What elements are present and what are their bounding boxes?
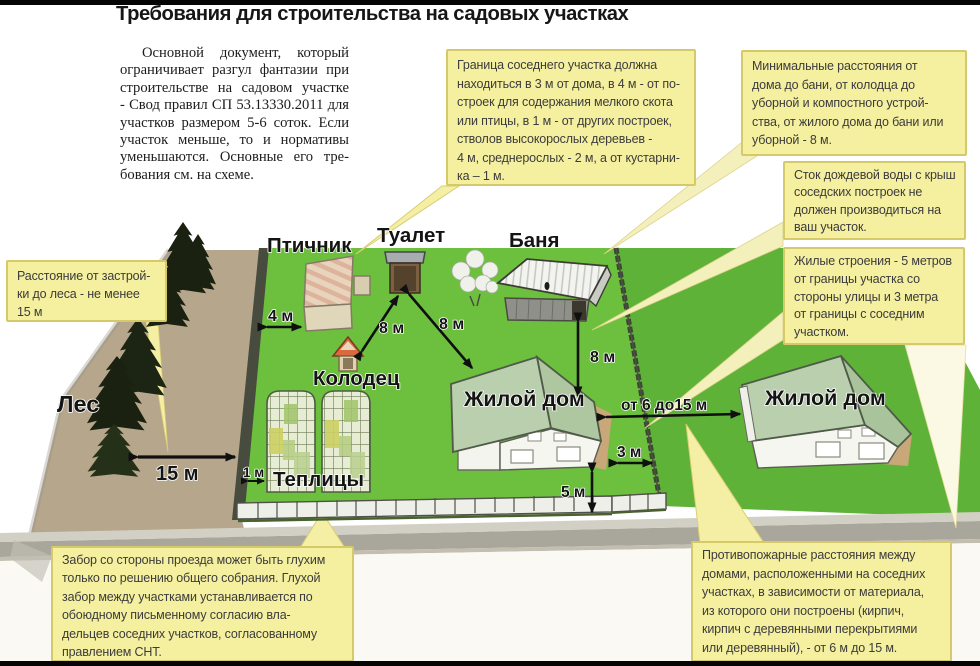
svg-text:1 м: 1 м xyxy=(243,465,264,480)
svg-text:8 м: 8 м xyxy=(590,349,615,366)
svg-text:8 м: 8 м xyxy=(379,320,404,337)
svg-text:8 м: 8 м xyxy=(439,316,464,333)
svg-text:5 м: 5 м xyxy=(561,484,585,501)
svg-text:Колодец: Колодец xyxy=(313,367,400,390)
svg-text:4 м: 4 м xyxy=(268,308,293,325)
svg-text:Лес: Лес xyxy=(57,391,99,417)
svg-text:от 6 до15 м: от 6 до15 м xyxy=(621,397,707,414)
svg-text:3 м: 3 м xyxy=(617,444,641,461)
svg-text:15 м: 15 м xyxy=(156,463,199,485)
svg-text:Птичник: Птичник xyxy=(267,234,352,257)
svg-text:Жилой дом: Жилой дом xyxy=(463,387,585,411)
svg-text:Баня: Баня xyxy=(509,229,559,252)
svg-text:Теплицы: Теплицы xyxy=(273,468,364,491)
svg-text:Жилой дом: Жилой дом xyxy=(764,386,886,410)
svg-text:Туалет: Туалет xyxy=(377,224,445,247)
